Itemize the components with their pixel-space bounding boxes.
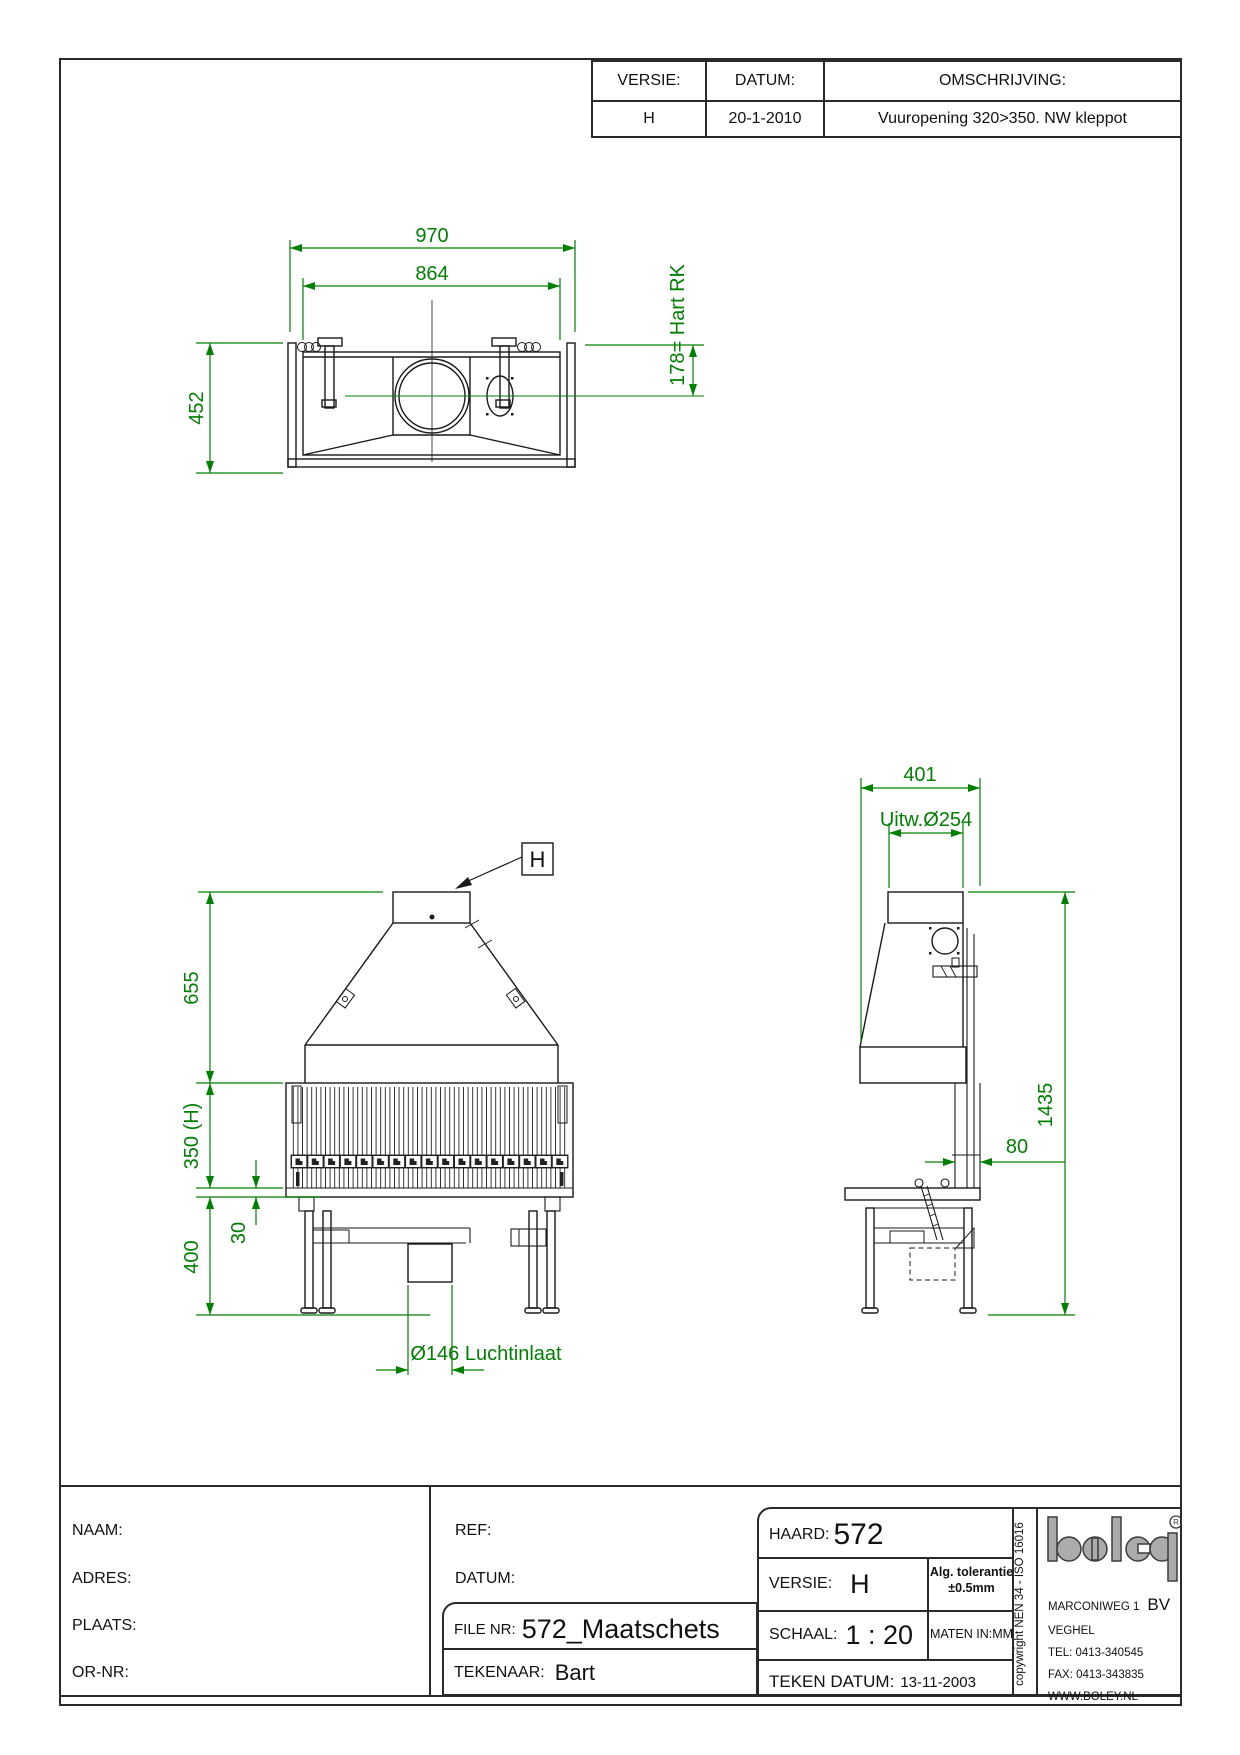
file-nr-label: FILE NR: (454, 1621, 516, 1638)
tolerantie-cell: Alg. tolerantie ±0.5mm (929, 1565, 1014, 1605)
haard-value: 572 (833, 1518, 883, 1552)
dim-side-flue-diameter: Uitw.Ø254 (880, 809, 972, 831)
field-naam-label: NAAM: (72, 1522, 123, 1539)
tolerantie-line1: Alg. tolerantie (929, 1565, 1014, 1581)
file-nr-value: 572_Maatschets (522, 1614, 720, 1645)
haard-box: HAARD: 572 VERSIE: H Alg. tolerantie ±0.… (757, 1507, 1014, 1696)
copyright-strip: copywright NEN 34 - ISO 16016 (1012, 1507, 1038, 1696)
field-ornr: OR-NR: (72, 1664, 129, 1682)
top-view-drawing (288, 300, 575, 467)
field-plaats: PLAATS: (72, 1617, 137, 1635)
tekenaar-row: TEKENAAR: Bart (454, 1656, 754, 1690)
dim-side-total-height: 1435 (1035, 1083, 1057, 1128)
dim-side-back-width: 80 (1006, 1136, 1028, 1158)
spring-coil-right (518, 343, 541, 352)
haard-label: HAARD: (769, 1526, 829, 1544)
field-ref-label: REF: (455, 1522, 491, 1539)
front-view-drawing (286, 892, 573, 1313)
company-box: R MARCONIWEG 1 BV VEGHEL TEL: 0413-34054… (1036, 1507, 1182, 1696)
boley-logo: R (1040, 1513, 1182, 1585)
copyright-text: copywright NEN 34 - ISO 16016 (1014, 1511, 1036, 1697)
field-adres-label: ADRES: (72, 1570, 132, 1587)
hood-clamp-left (336, 989, 354, 1008)
title-block-top-line (59, 1485, 1182, 1487)
field-datum: DATUM: (455, 1570, 515, 1588)
mounting-bracket-left (318, 338, 342, 408)
company-tel: TEL: 0413-340545 (1048, 1643, 1178, 1665)
teken-datum-row: TEKEN DATUM: 13-11-2003 (769, 1663, 1009, 1701)
dim-front-air-inlet: Ø146 Luchtinlaat (410, 1343, 562, 1365)
hood-clamp-right (506, 989, 524, 1008)
title-block-left-divider (429, 1485, 431, 1697)
teken-datum-value: 13-11-2003 (900, 1674, 976, 1691)
field-adres: ADRES: (72, 1570, 132, 1588)
field-ref: REF: (455, 1522, 491, 1540)
company-address2: VEGHEL (1048, 1621, 1178, 1643)
tekenaar-value: Bart (555, 1660, 595, 1686)
field-ornr-label: OR-NR: (72, 1664, 129, 1681)
dim-front-grate-offset: 30 (228, 1222, 250, 1244)
h-callout-label: H (530, 847, 546, 872)
haard-row: HAARD: 572 (769, 1515, 1009, 1555)
company-bv: BV (1147, 1589, 1170, 1621)
file-box: FILE NR: 572_Maatschets TEKENAAR: Bart (442, 1602, 758, 1696)
technical-drawing: 970 864 452 178= Hart RK (0, 0, 1240, 1755)
schaal-label: SCHAAL: (769, 1626, 837, 1644)
logo-reg-mark: R (1173, 1518, 1179, 1527)
versie-value: H (850, 1569, 870, 1600)
schaal-value: 1 : 20 (845, 1620, 913, 1651)
company-address1: MARCONIWEG 1 (1048, 1597, 1139, 1619)
dim-top-inner-width: 864 (415, 263, 448, 285)
teken-datum-label: TEKEN DATUM: (769, 1672, 894, 1692)
company-web: WWW.BOLEY.NL (1048, 1687, 1178, 1709)
tolerantie-line2: ±0.5mm (929, 1581, 1014, 1597)
company-address: MARCONIWEG 1 BV VEGHEL TEL: 0413-340545 … (1048, 1589, 1178, 1709)
spring-coil-left (298, 343, 321, 352)
h-callout-arrow (455, 877, 472, 889)
h-callout: H (455, 843, 553, 889)
field-datum-label: DATUM: (455, 1570, 515, 1587)
dim-front-opening-height: 350 (H) (181, 1103, 203, 1170)
schaal-row: SCHAAL: 1 : 20 (769, 1613, 919, 1657)
dim-side-top-depth: 401 (903, 764, 936, 786)
dim-front-hood-height: 655 (181, 971, 203, 1004)
company-fax: FAX: 0413-343835 (1048, 1665, 1178, 1687)
file-row: FILE NR: 572_Maatschets (454, 1612, 754, 1646)
field-naam: NAAM: (72, 1522, 123, 1540)
field-plaats-label: PLAATS: (72, 1617, 137, 1634)
dim-top-depth: 452 (186, 391, 208, 424)
tekenaar-label: TEKENAAR: (454, 1664, 545, 1682)
dim-top-flue-center: 178= Hart RK (667, 263, 689, 385)
dim-front-base-height: 400 (181, 1240, 203, 1273)
side-view-drawing (845, 892, 980, 1313)
versie-label: VERSIE: (769, 1575, 832, 1593)
maten-label: MATEN IN:MM (930, 1627, 1013, 1641)
dim-top-outer-width: 970 (415, 225, 448, 247)
versie-row: VERSIE: H (769, 1561, 919, 1607)
maten-cell: MATEN IN:MM (929, 1627, 1014, 1647)
